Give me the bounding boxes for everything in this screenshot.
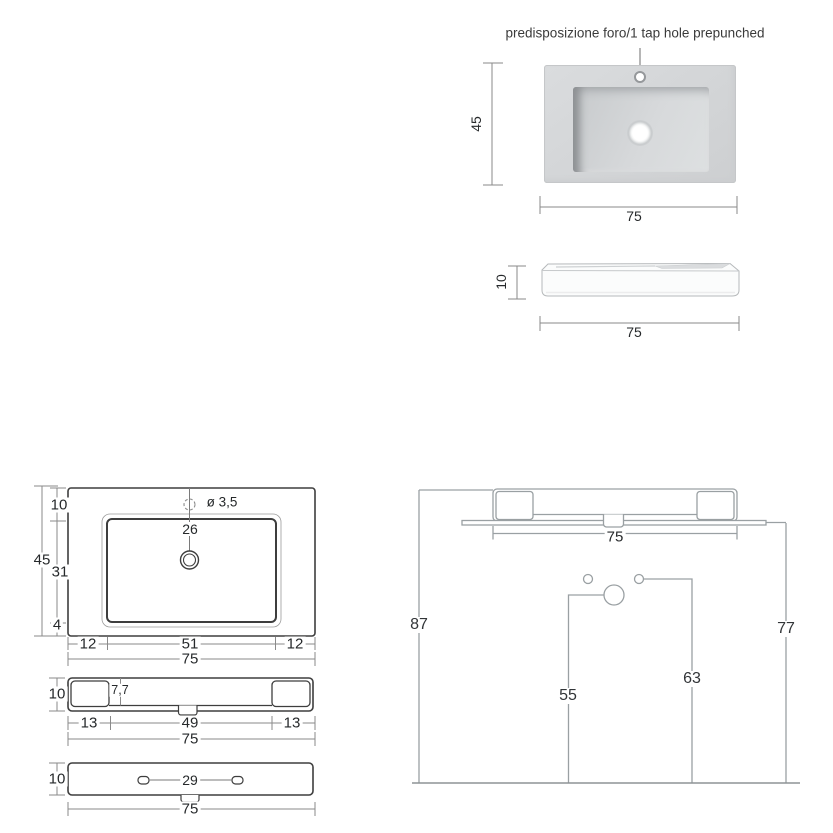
dim-front-basin-depth: 7,7 [109, 684, 130, 697]
dim-front-height: 10 [47, 687, 68, 702]
dim-tap-hole-diameter: ø 3,5 [207, 495, 238, 509]
dim-plan-front-margin: 4 [51, 618, 63, 633]
tap-hole [634, 71, 646, 83]
front-view [68, 678, 313, 715]
side-view-rendered [542, 264, 739, 297]
dim-side-thickness: 10 [494, 274, 508, 290]
dim-floor-to-underside: 77 [775, 621, 797, 637]
dim-supply-height: 63 [681, 671, 703, 687]
dim-install-width: 75 [605, 530, 626, 545]
dim-plan-basin-width: 51 [180, 637, 201, 652]
dim-top-depth: 45 [469, 116, 483, 132]
dim-plan-overall-width: 75 [180, 652, 201, 667]
dim-front-basin-span: 49 [180, 716, 201, 731]
dim-tap-to-drain: 26 [180, 522, 200, 536]
dim-floor-to-top: 87 [408, 617, 430, 633]
dim-plan-back-margin: 10 [49, 498, 70, 513]
drain-hole [627, 120, 653, 146]
dim-top-width: 75 [626, 209, 642, 223]
dim-plan-basin-span: 31 [50, 565, 71, 580]
dim-plan-right-margin: 12 [285, 637, 306, 652]
dim-drain-height: 55 [557, 688, 579, 704]
dim-front-left-margin: 13 [79, 716, 100, 731]
dim-plan-left-margin: 12 [78, 637, 99, 652]
dim-slot-spacing: 29 [180, 773, 200, 787]
dim-side-width: 75 [626, 325, 642, 339]
technical-drawing-sheet: predisposizione foro/1 tap hole prepunch… [0, 0, 833, 833]
tap-hole-note: predisposizione foro/1 tap hole prepunch… [506, 26, 765, 41]
dim-underside-height: 10 [47, 772, 68, 787]
plan-view [68, 488, 315, 636]
dim-front-overall-width: 75 [180, 732, 201, 747]
dim-underside-overall-width: 75 [180, 802, 201, 817]
dim-front-right-margin: 13 [282, 716, 303, 731]
